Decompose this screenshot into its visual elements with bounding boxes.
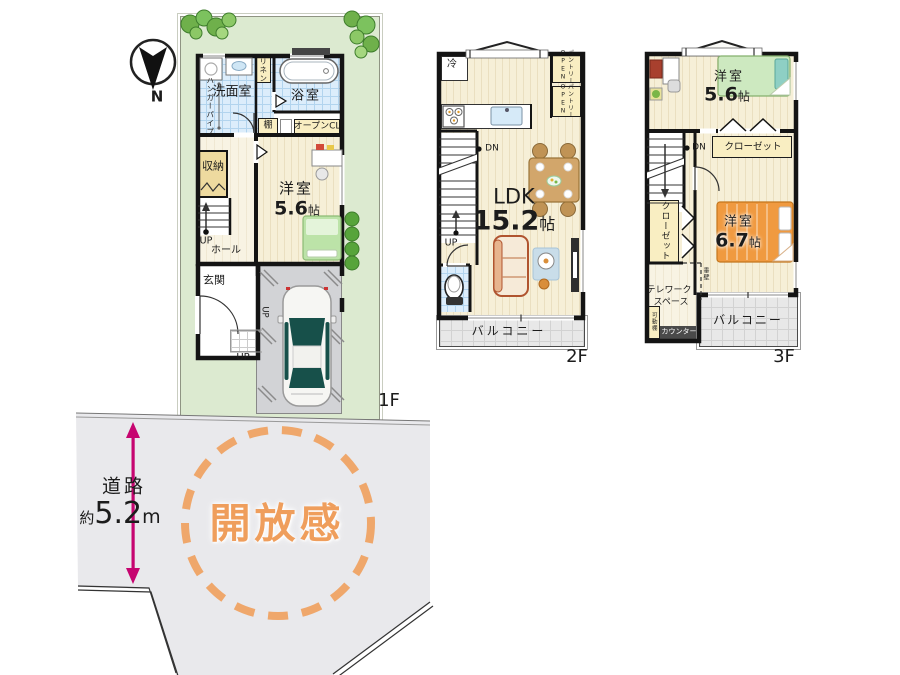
f3-telework-label-2: スペース (654, 299, 689, 308)
f1-porch-up-label: UP (236, 353, 249, 363)
f2-stairs-dn-label: DN (485, 145, 499, 154)
f1-open-closet-label: オープンCL (294, 123, 341, 132)
road-approx: 約 (79, 509, 94, 527)
f3-bedroom2-label: 洋室 (724, 216, 754, 229)
north-compass-icon (131, 40, 175, 90)
f1-hanger-pipe-label: ハンガーパイプ (206, 76, 214, 136)
f2-pantry2-label: OPENパントリー (560, 84, 573, 119)
f2-fridge-label: 冷 (447, 60, 457, 70)
f2-pantry1-label: OPENパントリー (560, 50, 573, 85)
f1-linen-label: リネン (259, 57, 267, 83)
f3-telework-label-1: テレワーク (646, 287, 691, 296)
f2-kitchen-counter (441, 104, 531, 129)
road-width-label: 約5.2m (79, 499, 160, 529)
f3-floor-label: 3F (773, 348, 795, 366)
f3-stairs-dn-label: DN (692, 144, 706, 153)
f1-closet-pole (280, 119, 292, 135)
f3-bedroom2-size-label: 6.7帖 (715, 232, 761, 251)
f2-stairs-area (439, 133, 477, 243)
f2-ldk-size-label: 15.2帖 (473, 208, 556, 235)
f1-washroom-label: 洗面室 (212, 86, 251, 99)
f1-storage-label: 収納 (202, 161, 224, 172)
road-label: 道路 (102, 478, 146, 497)
f1-garage-floor (256, 264, 342, 414)
f3-counter-label: カウンター (662, 329, 697, 336)
north-label: N (151, 90, 164, 105)
f1-stairs-area (198, 198, 230, 235)
f1-entrance-label: 玄関 (203, 275, 225, 286)
f1-floor-label: 1F (378, 392, 400, 410)
road-width-value: 5.2 (94, 496, 142, 531)
openness-label: 開放感 (210, 504, 345, 545)
f1-bedroom-size-label: 5.6帖 (274, 200, 320, 219)
road-width-unit: m (142, 506, 161, 528)
f2-floor-label: 2F (566, 348, 588, 366)
f2-balcony-label: バルコニー (472, 325, 547, 337)
f1-shelf-label: 棚 (263, 122, 272, 131)
f1-hall-label: ホール (211, 246, 241, 256)
f3-balcony-label: バルコニー (713, 314, 783, 326)
f2-stairs-up-label: UP (445, 238, 458, 248)
f3-movable-shelf-label: 可動棚 (650, 312, 656, 332)
f2-toilet-floor (439, 265, 470, 312)
f3-closet2-label: クローゼット (660, 201, 669, 261)
f1-bedroom-label: 洋室 (279, 182, 313, 197)
f1-storage-box (198, 150, 228, 198)
f1-porch-tiles (230, 330, 260, 352)
f3-bedroom1-label: 洋室 (714, 71, 744, 84)
f3-closet1-label: クローゼット (724, 142, 781, 152)
f3-bedroom1-size-label: 5.6帖 (704, 86, 750, 105)
f3-hanging-wall-label: 垂壁 (702, 267, 708, 281)
f1-garage-up-label: UP (260, 306, 269, 317)
floor-plan-sheet: N 道路 約5.2m 開放感 洗面室 浴室 リネン ハンガーパイプ 棚 オープン… (0, 0, 900, 675)
f2-ldk-label: LDK (493, 187, 535, 208)
f1-bath-label: 浴室 (291, 90, 321, 103)
f1-bath-floor (274, 56, 342, 112)
